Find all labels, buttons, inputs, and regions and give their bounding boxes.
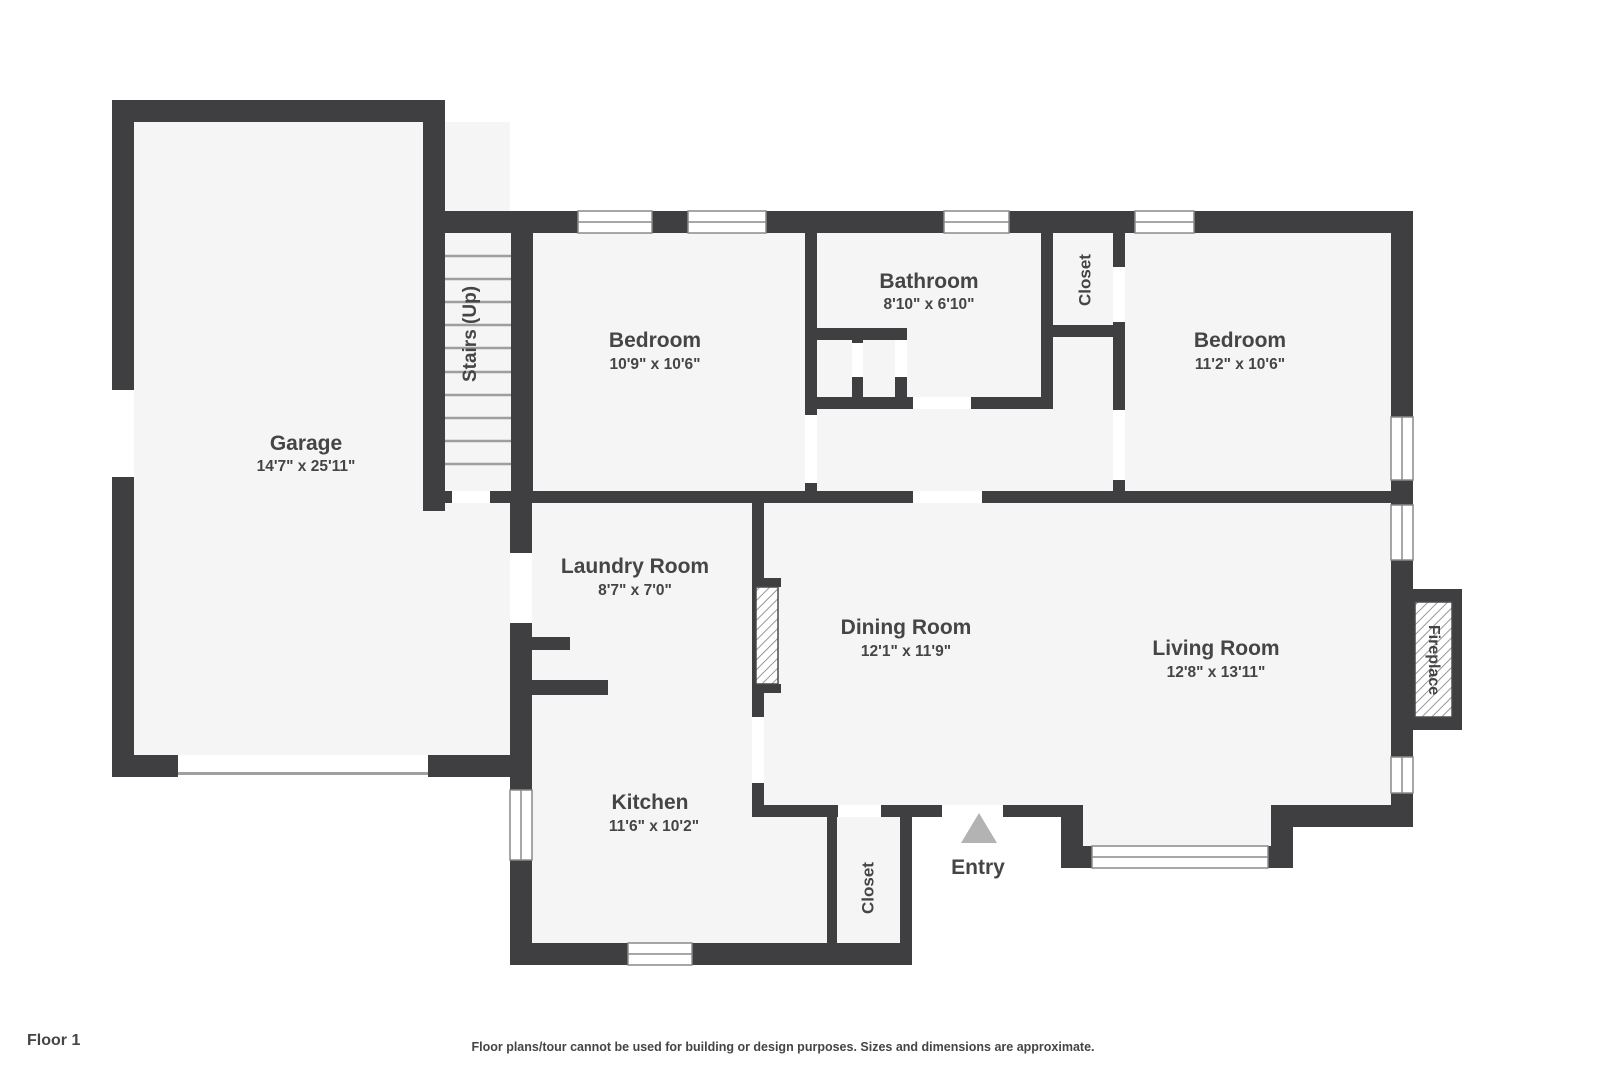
stairs-label: Stairs (Up) [460, 286, 481, 382]
fireplace: Fireplace [1391, 589, 1462, 730]
kitchen-dims: 11'6" x 10'2" [609, 818, 699, 835]
garage-label: Garage [270, 432, 342, 455]
bathroom-label: Bathroom [879, 270, 978, 293]
entry-label: Entry [951, 856, 1005, 879]
laundry-door-leaf [753, 578, 781, 693]
bedroom1-dims: 10'9" x 10'6" [609, 356, 700, 373]
floorplan-canvas: Fireplace Garage 14'7" x 25'11" Stairs (… [0, 0, 1600, 1067]
bathroom-dims: 8'10" x 6'10" [883, 296, 974, 313]
top-closet-label: Closet [1075, 254, 1094, 306]
garage-door-line [178, 772, 428, 775]
bedroom2-dims: 11'2" x 10'6" [1195, 356, 1285, 373]
entry-arrow-icon [961, 813, 997, 843]
fireplace-label: Fireplace [1425, 625, 1442, 695]
laundry-dims: 8'7" x 7'0" [598, 582, 672, 599]
garage-dims: 14'7" x 25'11" [257, 458, 356, 475]
bedroom1-label: Bedroom [609, 329, 701, 352]
kitchen-label: Kitchen [611, 791, 688, 814]
living-dims: 12'8" x 13'11" [1167, 664, 1266, 681]
floor-number-label: Floor 1 [27, 1032, 80, 1049]
laundry-label: Laundry Room [561, 555, 709, 578]
entry-closet-label: Closet [858, 862, 877, 914]
living-label: Living Room [1152, 637, 1279, 660]
bedroom2-label: Bedroom [1194, 329, 1286, 352]
dining-label: Dining Room [841, 616, 972, 639]
floorplan-page: Fireplace Garage 14'7" x 25'11" Stairs (… [0, 0, 1600, 1067]
disclaimer-text: Floor plans/tour cannot be used for buil… [471, 1040, 1094, 1054]
dining-dims: 12'1" x 11'9" [861, 643, 951, 660]
